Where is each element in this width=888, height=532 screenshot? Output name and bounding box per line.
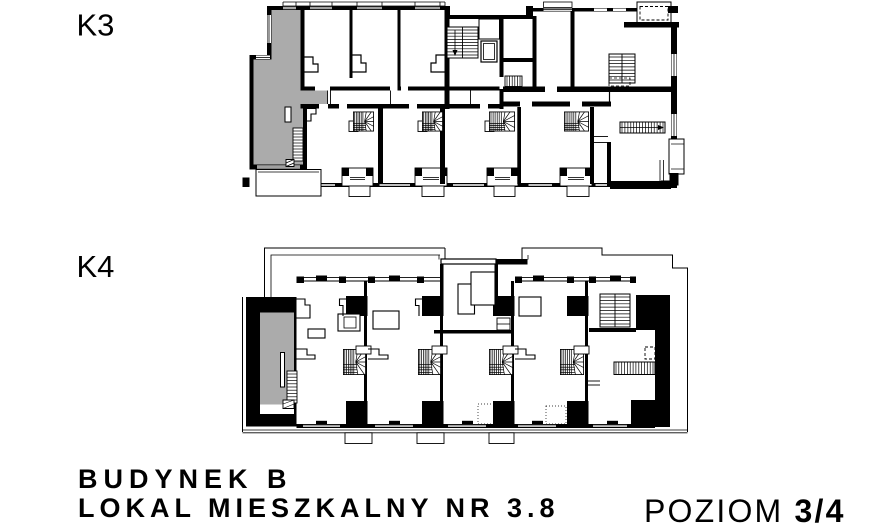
svg-text:POZIOM 3/4: POZIOM 3/4 bbox=[644, 493, 846, 529]
svg-text:LOKAL MIESZKALNY NR 3.8: LOKAL MIESZKALNY NR 3.8 bbox=[78, 493, 560, 523]
svg-text:K3: K3 bbox=[77, 8, 115, 43]
svg-text:BUDYNEK B: BUDYNEK B bbox=[78, 464, 293, 494]
svg-text:K4: K4 bbox=[77, 249, 115, 284]
